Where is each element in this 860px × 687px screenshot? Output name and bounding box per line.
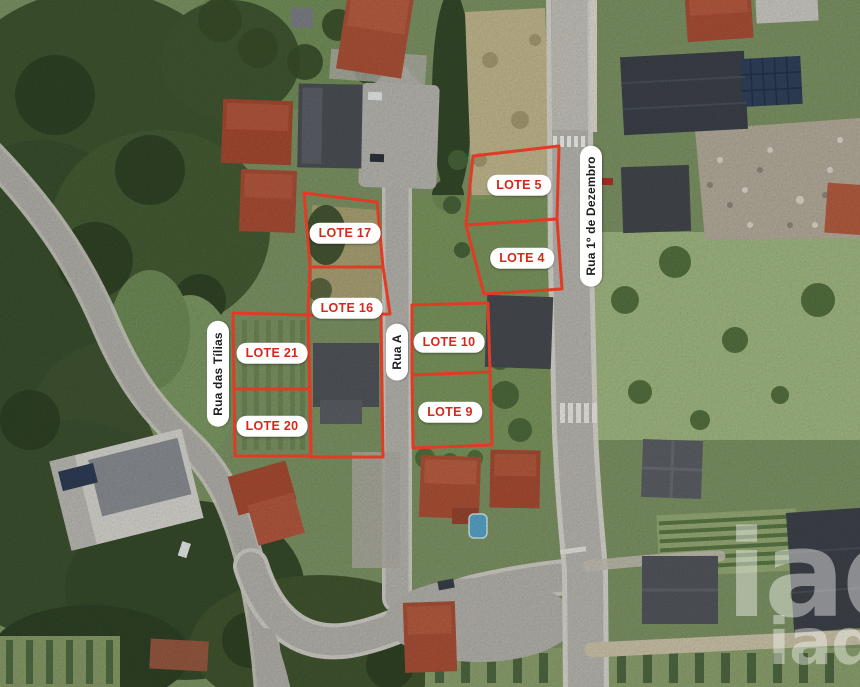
- street-label-rua-das-tilias: Rua das Tílias: [207, 321, 229, 427]
- lot-label-lote-17: LOTE 17: [310, 223, 381, 244]
- lot-label-lote-5: LOTE 5: [487, 175, 551, 196]
- lot-label-lote-9: LOTE 9: [418, 402, 482, 423]
- lot-label-lote-4: LOTE 4: [490, 248, 554, 269]
- lot-label-lote-21: LOTE 21: [237, 343, 308, 364]
- aerial-map: LOTE 5 LOTE 4 LOTE 17 LOTE 16 LOTE 21 LO…: [0, 0, 860, 687]
- lot-label-lote-16: LOTE 16: [312, 298, 383, 319]
- lot-label-lote-20: LOTE 20: [237, 416, 308, 437]
- street-label-rua-1-de-dezembro: Rua 1º de Dezembro: [580, 145, 602, 286]
- lot-label-lote-10: LOTE 10: [414, 332, 485, 353]
- street-label-rua-a: Rua A: [386, 323, 408, 380]
